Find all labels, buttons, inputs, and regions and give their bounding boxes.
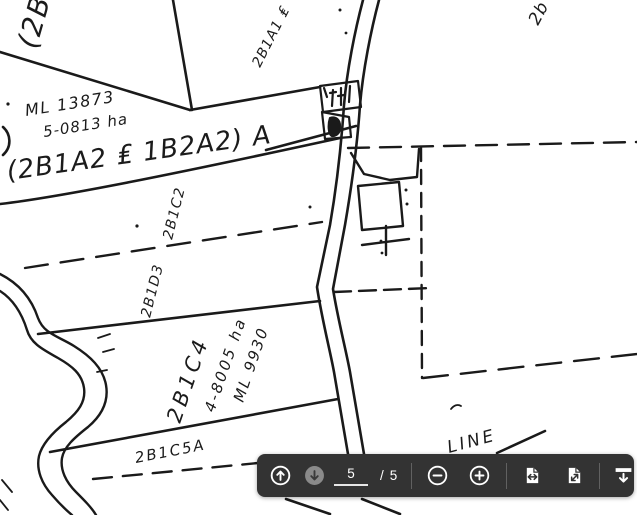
map-labels: (2B 2B1A1 ₤ 2b ML 13873 5-0813 ha (2B1A2… (5, 0, 554, 467)
label-parcel-2b-partial: (2B (11, 0, 58, 52)
boundary-line (173, 0, 192, 110)
label-parcel-2b1c5a: 2B1C5A (133, 436, 207, 467)
parcel-boundaries (0, 0, 545, 453)
boundary-line (190, 87, 320, 110)
boundary-line (38, 301, 320, 334)
building-filled (329, 117, 340, 136)
document-page: (2B 2B1A1 ₤ 2b ML 13873 5-0813 ha (2B1A2… (0, 0, 637, 515)
label-parcel-2b-top-right: 2b (525, 0, 554, 28)
building-symbols (320, 81, 361, 139)
label-line: LINE (445, 426, 498, 458)
minus-circle-icon (427, 465, 448, 486)
enclosures (351, 149, 419, 255)
pdf-toolbar: / 5 (257, 454, 634, 497)
dashed-boundary-line (423, 354, 637, 378)
dashed-boundary-line (348, 142, 637, 148)
fit-page-button[interactable] (563, 465, 585, 487)
page-separator: / (380, 468, 384, 483)
page-number-input[interactable] (334, 466, 368, 486)
enclosure-outline (351, 149, 419, 180)
dashed-boundary-line (93, 463, 258, 479)
label-parcel-2b1c2: 2B1C2 (160, 185, 188, 241)
fit-width-icon (523, 466, 542, 485)
boundary-line (497, 431, 545, 453)
toolbar-divider (599, 463, 600, 489)
label-parcel-2b1a1: 2B1A1 ₤ (249, 4, 293, 70)
dashed-boundaries (25, 142, 637, 479)
arrow-down-circle-icon (304, 465, 325, 486)
road-path (286, 499, 330, 514)
page-total: 5 (390, 468, 398, 483)
dashed-boundary-line (421, 147, 422, 378)
label-parcel-2b1c4: 2B1C4 (162, 334, 214, 426)
road-path (333, 0, 379, 454)
stream-path (0, 274, 107, 515)
download-button[interactable] (612, 465, 634, 487)
dashed-boundary-line (334, 288, 430, 292)
scan-mark (451, 405, 461, 409)
previous-page-button[interactable] (269, 465, 291, 487)
road-path (362, 499, 400, 514)
fit-page-icon (565, 466, 584, 485)
zoom-out-button[interactable] (426, 465, 448, 487)
stream-bank-marks (0, 334, 114, 510)
cadastral-map-svg: (2B 2B1A1 ₤ 2b ML 13873 5-0813 ha (2B1A2… (0, 0, 637, 515)
road-path (317, 0, 363, 454)
fit-width-button[interactable] (521, 465, 543, 487)
arrow-up-circle-icon (270, 465, 291, 486)
edge-arc (3, 127, 9, 155)
road (286, 0, 400, 514)
zoom-in-button[interactable] (468, 465, 490, 487)
plus-circle-icon (469, 465, 490, 486)
toolbar-divider (411, 463, 412, 489)
toolbar-divider (506, 463, 507, 489)
enclosure-outline (358, 182, 403, 230)
download-icon (613, 465, 634, 486)
next-page-button[interactable] (303, 465, 325, 487)
label-parcel-2b1d3: 2B1D3 (138, 262, 167, 319)
